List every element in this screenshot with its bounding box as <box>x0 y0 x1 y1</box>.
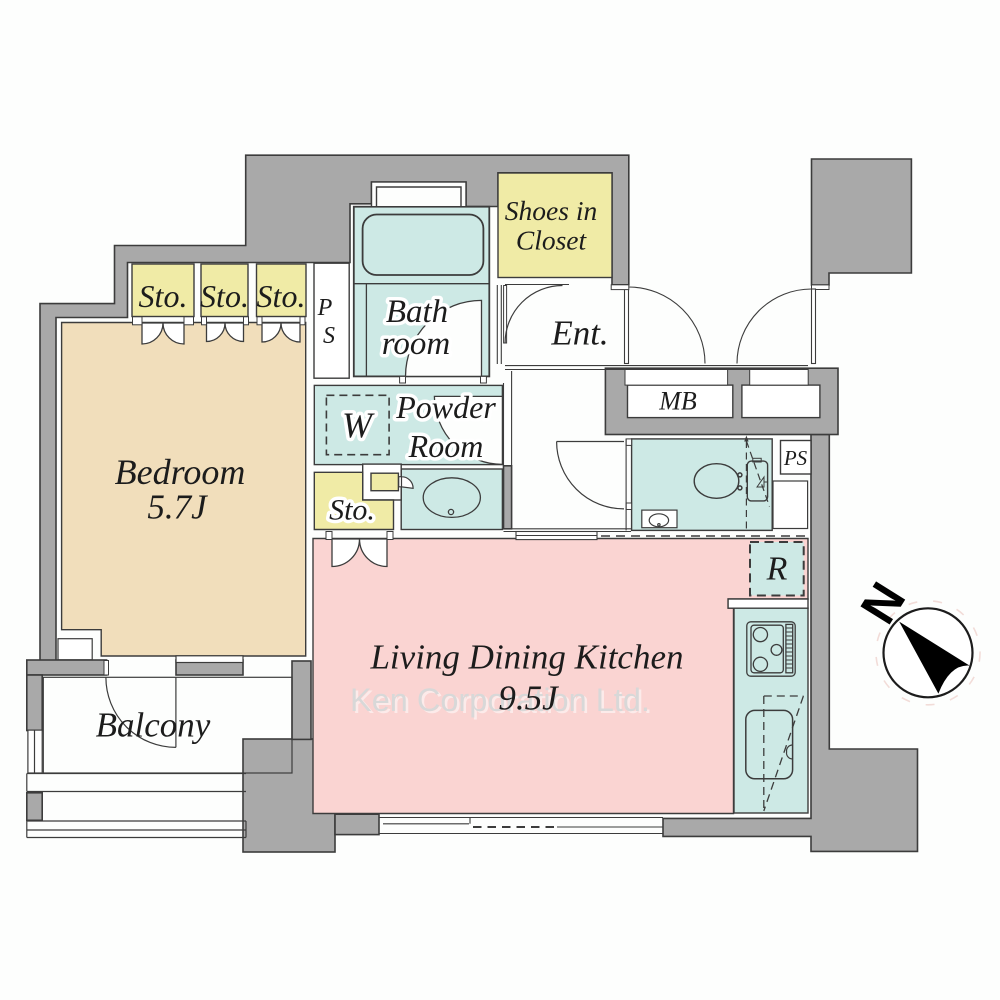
svg-text:P: P <box>317 295 333 321</box>
svg-text:Sto.: Sto. <box>139 278 188 314</box>
svg-text:Ent.: Ent. <box>550 314 608 353</box>
svg-text:W: W <box>342 405 375 445</box>
svg-text:room: room <box>382 326 450 362</box>
svg-text:Sto.: Sto. <box>257 278 306 314</box>
svg-text:Powder: Powder <box>395 389 496 425</box>
svg-text:R: R <box>766 551 788 588</box>
svg-text:Closet: Closet <box>516 225 588 256</box>
svg-text:MB: MB <box>658 387 697 416</box>
svg-text:Balcony: Balcony <box>96 706 211 745</box>
svg-text:Room: Room <box>408 428 484 464</box>
svg-text:Shoes in: Shoes in <box>505 195 597 226</box>
svg-text:Bath: Bath <box>386 294 448 330</box>
svg-text:Bedroom: Bedroom <box>115 452 246 492</box>
svg-text:Living Dining Kitchen: Living Dining Kitchen <box>369 638 683 677</box>
svg-text:PS: PS <box>783 446 808 470</box>
svg-text:Sto.: Sto. <box>200 278 249 314</box>
svg-text:S: S <box>323 323 335 349</box>
svg-text:Sto.: Sto. <box>329 494 375 527</box>
svg-text:9.5J: 9.5J <box>498 679 559 718</box>
svg-text:5.7J: 5.7J <box>147 488 208 527</box>
